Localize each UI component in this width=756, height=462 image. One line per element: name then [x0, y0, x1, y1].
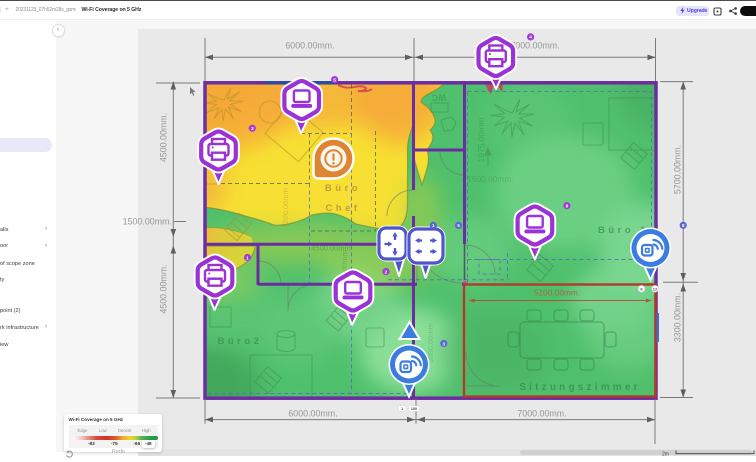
svg-text:1: 1	[246, 255, 249, 261]
svg-text:1: 1	[401, 407, 403, 411]
svg-text:3: 3	[442, 341, 445, 347]
svg-text:8: 8	[682, 223, 685, 229]
svg-text:5: 5	[457, 223, 460, 229]
svg-text:3: 3	[251, 126, 254, 132]
svg-text:100: 100	[411, 407, 417, 411]
svg-text:4: 4	[529, 35, 532, 41]
svg-text:2: 2	[385, 269, 388, 275]
svg-text:9: 9	[566, 203, 569, 209]
svg-text:5: 5	[333, 77, 336, 83]
svg-text:12: 12	[653, 286, 658, 291]
svg-text:1: 1	[432, 223, 435, 229]
svg-text:2m: 2m	[662, 452, 669, 458]
